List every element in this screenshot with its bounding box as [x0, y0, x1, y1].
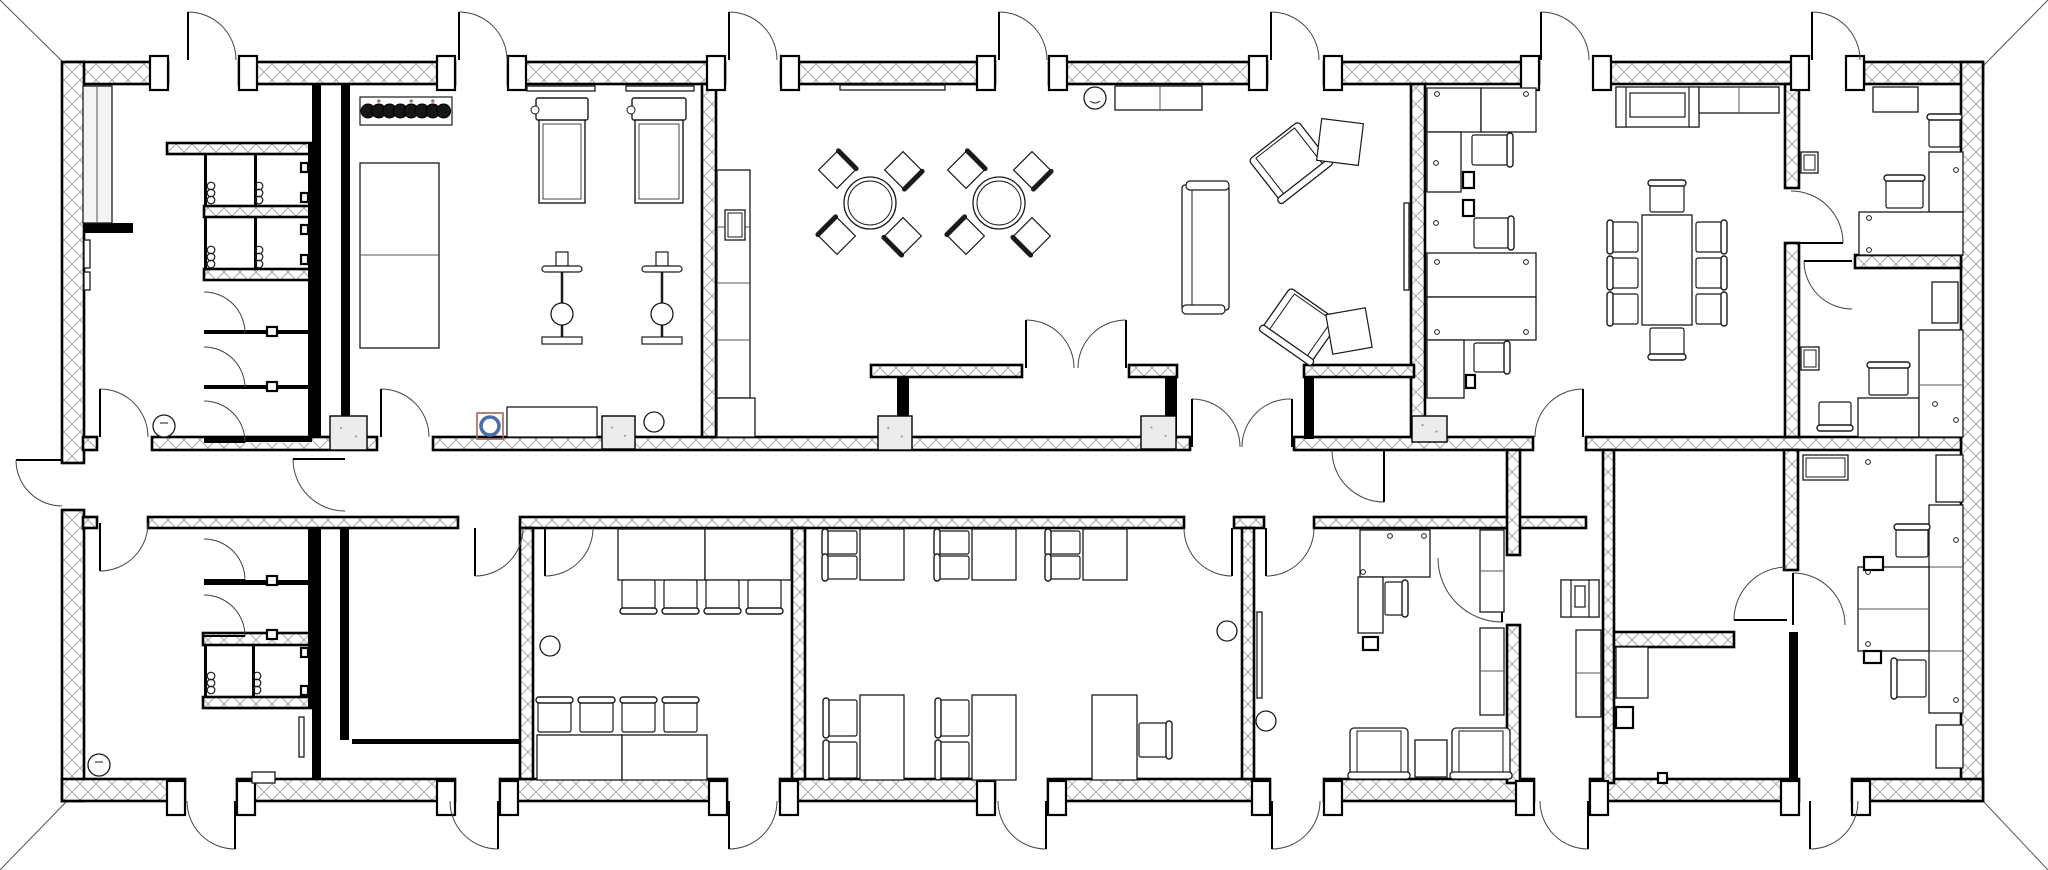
door-jamb [1590, 781, 1608, 815]
toilet-fixture [267, 576, 277, 585]
classroom-chair [935, 740, 969, 780]
door-jamb [707, 56, 725, 90]
copier [1616, 87, 1699, 127]
exercise-bench [627, 98, 686, 203]
wall-storage-east [1603, 450, 1614, 783]
lounge-south-wall [1129, 365, 1177, 377]
door-jamb [1252, 781, 1270, 815]
toilet-fixture [301, 686, 308, 695]
door-jamb [239, 56, 257, 90]
training-chair [662, 580, 699, 614]
training-chair [662, 697, 699, 732]
washbasin [153, 415, 175, 437]
office-chair [1894, 524, 1930, 557]
meeting-table [1642, 215, 1692, 325]
outer-wall-east [1961, 62, 1983, 801]
wall-radiator [84, 240, 90, 268]
office-chair [1472, 133, 1513, 167]
wall-f-e [1789, 632, 1798, 783]
door-jamb [437, 781, 455, 815]
door-jamb [150, 56, 168, 90]
corridor-north-wall [83, 437, 97, 450]
stall-wall [204, 269, 312, 280]
waste-bin [540, 636, 560, 656]
stall-wall [204, 206, 312, 217]
wall-cabinet [1801, 152, 1818, 173]
wall-mirror [299, 717, 304, 757]
training-chair [620, 580, 657, 614]
toilet-fixture [301, 163, 308, 172]
round-table [973, 177, 1025, 229]
wall-office1-office2 [1855, 255, 1961, 268]
waste-bin [1217, 621, 1237, 641]
meeting-chair [1648, 328, 1686, 360]
wall-board [1803, 455, 1848, 480]
classroom-chair [935, 698, 969, 738]
sofa [1182, 181, 1229, 314]
cabinet-niche [725, 210, 745, 240]
outer-wall-bottom [1048, 779, 1270, 801]
round-table [844, 177, 896, 229]
wall-mirror [527, 86, 595, 91]
corridor-north-wall [1586, 437, 1961, 450]
training-chair [620, 697, 657, 732]
classroom-chair [822, 554, 857, 581]
roome-cabinet [1936, 455, 1963, 502]
training-chair [536, 697, 573, 732]
office-desk-return [1427, 340, 1464, 398]
toilet-fixture [267, 327, 277, 336]
meeting-chair [1648, 180, 1686, 212]
door-jamb [977, 56, 995, 90]
desk-equipment [1466, 375, 1475, 388]
dumbbell-rack [360, 97, 452, 125]
door-jamb [1516, 781, 1534, 815]
corridor-south-wall [1314, 517, 1586, 528]
door-jamb [1852, 781, 1870, 815]
waste-bin [1256, 711, 1276, 731]
office-desk [1427, 297, 1536, 340]
training-table [705, 529, 791, 580]
stall-wall [203, 633, 311, 645]
wall-gym-lounge [702, 84, 716, 437]
toilet-fixture [301, 225, 308, 234]
door-jamb [1593, 56, 1611, 90]
door-jamb [508, 56, 526, 90]
wall-classroom-east [1242, 528, 1254, 779]
outer-wall-top [1609, 62, 1805, 84]
door-jamb [781, 56, 799, 90]
meeting-chair [1696, 220, 1727, 254]
door-jamb [1846, 56, 1864, 90]
wall-board [1257, 612, 1262, 698]
door-jamb [437, 56, 455, 90]
desk-equipment [1864, 557, 1883, 570]
door-jamb [977, 781, 995, 815]
outer-wall-west [62, 62, 84, 463]
office-chair [1867, 362, 1910, 395]
wall-cabinet [1801, 347, 1819, 370]
classroom-chair [934, 554, 969, 581]
office1-desk [1859, 212, 1963, 255]
training-table [622, 735, 707, 780]
floor-plan-page [0, 0, 2048, 870]
wall-post [1141, 416, 1176, 449]
wall-training-west [520, 528, 533, 779]
office2-desk [1919, 330, 1963, 437]
outer-wall-top [781, 62, 995, 84]
wall-post [602, 416, 635, 449]
lounge-cabinet-base [717, 398, 755, 437]
roome-cabinet [1936, 725, 1963, 768]
door-jamb [1249, 56, 1267, 90]
shaft-wall [341, 84, 350, 437]
outer-wall-west [62, 510, 84, 801]
wall-mirror [626, 86, 694, 91]
meeting-chair [1607, 220, 1638, 254]
classroom-chair [934, 529, 969, 556]
teacher-chair [1139, 721, 1172, 759]
tv-sideboard [1115, 86, 1202, 110]
door-jamb [500, 781, 518, 815]
office-desk-return [1427, 132, 1461, 192]
armchair [1450, 728, 1512, 779]
training-table [537, 735, 622, 780]
wall-gf-divider [1614, 632, 1734, 647]
lounge-south-wall [871, 365, 1022, 377]
classroom-chair [823, 698, 857, 738]
classroom-chair [823, 740, 857, 780]
side-table [1326, 308, 1372, 354]
training-chair [746, 580, 783, 614]
locker-wall-stub [83, 223, 133, 233]
wall-post [878, 416, 912, 450]
outer-wall-bottom [500, 779, 727, 801]
office-desk [1481, 88, 1536, 132]
door-jamb [167, 781, 185, 815]
wall-post [1412, 416, 1447, 442]
desk-equipment [1363, 637, 1378, 650]
outer-wall-top [1324, 62, 1539, 84]
wall-training-east [792, 528, 805, 779]
door-jamb [1048, 781, 1066, 815]
wall-radiator [84, 272, 90, 290]
floor-plan-canvas [0, 0, 2048, 870]
wall-roome-west [1784, 450, 1798, 570]
equipment [1658, 773, 1667, 783]
wall-post [330, 416, 367, 450]
door-jamb [1324, 56, 1342, 90]
training-chair [578, 697, 615, 732]
office-chair [1891, 658, 1926, 699]
classroom-desk [860, 695, 904, 780]
wall-shelf [840, 85, 945, 90]
toilet-fixture [267, 382, 277, 391]
classroom-chair [1045, 554, 1080, 581]
toilet-fixture [267, 630, 277, 639]
desk-equipment [1864, 651, 1881, 663]
washbasin [88, 754, 110, 776]
lounge-cabinet [717, 170, 750, 398]
toilet-fixture [301, 193, 308, 202]
wall-meeting-office1 [1785, 243, 1799, 437]
classroom-desk [1083, 529, 1127, 580]
equipment [1616, 707, 1633, 728]
training-table [618, 529, 705, 580]
classroom-chair [822, 529, 857, 556]
gym-bench [507, 407, 597, 437]
bench [252, 772, 275, 783]
roomc-desk [1358, 577, 1383, 633]
office-chair [1817, 402, 1853, 431]
stall-side-wall [308, 143, 312, 442]
meeting-chair [1696, 256, 1727, 290]
office-chair [1385, 580, 1408, 617]
outer-wall-top [508, 62, 725, 84]
meeting-chair [1696, 292, 1727, 326]
shaft-wall [340, 528, 349, 740]
wall-meeting-office1 [1785, 84, 1799, 188]
corridor-south-wall [83, 517, 97, 528]
corridor-south-wall [520, 517, 1184, 528]
desk-equipment [1463, 200, 1474, 216]
copier [1561, 580, 1599, 617]
office-desk [1427, 253, 1536, 297]
classroom-desk [972, 695, 1016, 780]
door-jamb [780, 781, 798, 815]
vestibule-stub [1304, 377, 1314, 439]
shower-partition [204, 645, 207, 697]
wall-board [1404, 203, 1409, 290]
door-jamb [1791, 56, 1809, 90]
armchair [1348, 728, 1410, 779]
stall-wall [203, 697, 311, 708]
outer-wall-bottom [780, 779, 995, 801]
roomc-desk [1360, 530, 1430, 577]
classroom-chair [1045, 529, 1080, 556]
office-chair [1474, 216, 1514, 250]
classroom-desk [972, 529, 1016, 580]
wall-roomc-storage [1507, 450, 1520, 555]
roome-desk [1929, 505, 1963, 713]
shaft-wall [312, 84, 321, 437]
office-chair [1884, 175, 1925, 208]
office-chair [1927, 114, 1962, 147]
coffee-table [1415, 740, 1447, 777]
corridor-south-wall [148, 517, 458, 528]
toilet-fixture [301, 648, 308, 657]
outer-wall-top [239, 62, 455, 84]
meeting-chair [1607, 256, 1638, 290]
closet-wall [352, 739, 520, 744]
office1-cabinet [1873, 87, 1918, 112]
side-table [1317, 119, 1364, 166]
outer-wall-bottom [1590, 779, 1799, 801]
door-jamb [1521, 56, 1539, 90]
office1-desk [1929, 152, 1963, 212]
roomf-desk [1616, 647, 1648, 698]
door-jamb [1324, 781, 1342, 815]
door-jamb [237, 781, 255, 815]
corridor-south-wall [1234, 517, 1264, 528]
toilet-fixture [301, 255, 308, 264]
outer-wall-top [1049, 62, 1267, 84]
stall-wall [167, 143, 312, 154]
teacher-desk [1092, 695, 1137, 780]
shower-partition [204, 154, 207, 206]
wall-lounge-office [1411, 84, 1425, 437]
office2-cabinet [1932, 282, 1958, 323]
paper [0, 0, 2048, 870]
exercise-bench [531, 98, 588, 203]
outer-wall-bottom [1324, 779, 1534, 801]
shaft-wall [312, 528, 321, 779]
outer-wall-bottom [1852, 779, 1983, 801]
shower-partition [204, 217, 207, 269]
waste-bin [644, 412, 664, 432]
office-chair [1474, 341, 1510, 374]
office2-desk [1858, 398, 1919, 437]
training-chair [704, 580, 741, 614]
door-jamb [1781, 781, 1799, 815]
lounge-south-wall [1304, 365, 1414, 377]
door-jamb [1049, 56, 1067, 90]
plant [1084, 87, 1106, 109]
door-jamb [709, 781, 727, 815]
stall-side-wall [308, 528, 312, 708]
classroom-desk [860, 529, 904, 580]
desk-equipment [1463, 172, 1474, 188]
meeting-chair [1607, 292, 1638, 326]
corridor-north-wall [433, 437, 1190, 450]
